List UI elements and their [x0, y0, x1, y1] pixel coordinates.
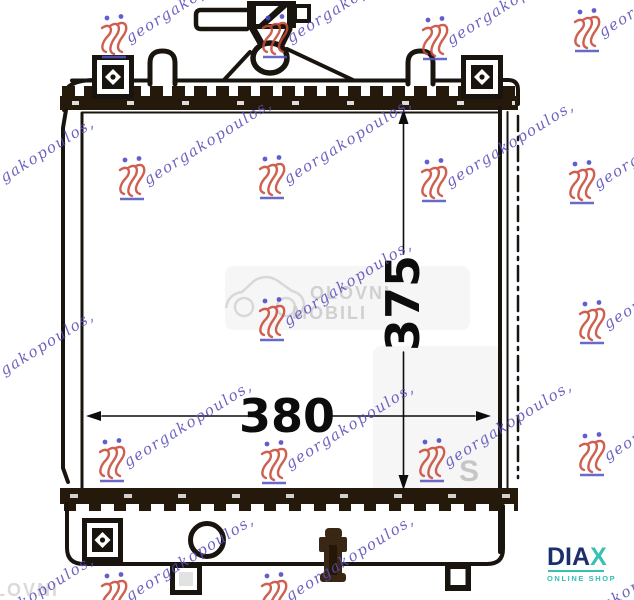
filler-neck-opening — [253, 43, 287, 73]
height-dimension-label: 375 — [376, 255, 430, 351]
top-left-bracket — [95, 58, 132, 97]
diax-dia-text: DIA — [547, 543, 590, 571]
diax-shop-logo: DIAX ONLINE SHOP — [547, 545, 617, 583]
top-left-tab — [150, 51, 175, 84]
arrow-up — [399, 109, 409, 124]
filler-neck — [224, 29, 353, 80]
bottom-left-bracket — [85, 521, 121, 560]
product-image-canvas: OLOVNI MOBILI LOVNI S — [0, 0, 634, 600]
inlet-pipe — [196, 10, 247, 29]
neck-right-brace — [287, 49, 353, 80]
width-dimension-label: 380 — [239, 389, 335, 443]
core-edges — [63, 108, 518, 552]
outlet-pipe — [319, 528, 347, 582]
top-right-tab — [408, 51, 433, 84]
diax-tagline: ONLINE SHOP — [547, 574, 617, 583]
core-left-outer-edge — [63, 110, 68, 482]
bottom-tab — [173, 566, 200, 593]
filler-cap — [247, 1, 309, 30]
radiator-diagram: 375 380 — [0, 0, 634, 600]
dimension-height: 375 — [376, 109, 430, 490]
drain-plug — [191, 524, 224, 557]
bottom-header-band — [60, 488, 518, 507]
bottom-tank — [67, 504, 503, 564]
diax-x-text: X — [590, 543, 607, 571]
neck-left-brace — [224, 52, 250, 80]
bottom-right-block — [445, 562, 471, 591]
arrow-left — [86, 411, 101, 421]
arrow-right — [476, 411, 491, 421]
top-right-bracket — [464, 58, 501, 97]
diax-wordmark: DIAX — [547, 545, 617, 569]
dimension-width: 380 — [86, 389, 491, 443]
arrow-down — [399, 475, 409, 490]
